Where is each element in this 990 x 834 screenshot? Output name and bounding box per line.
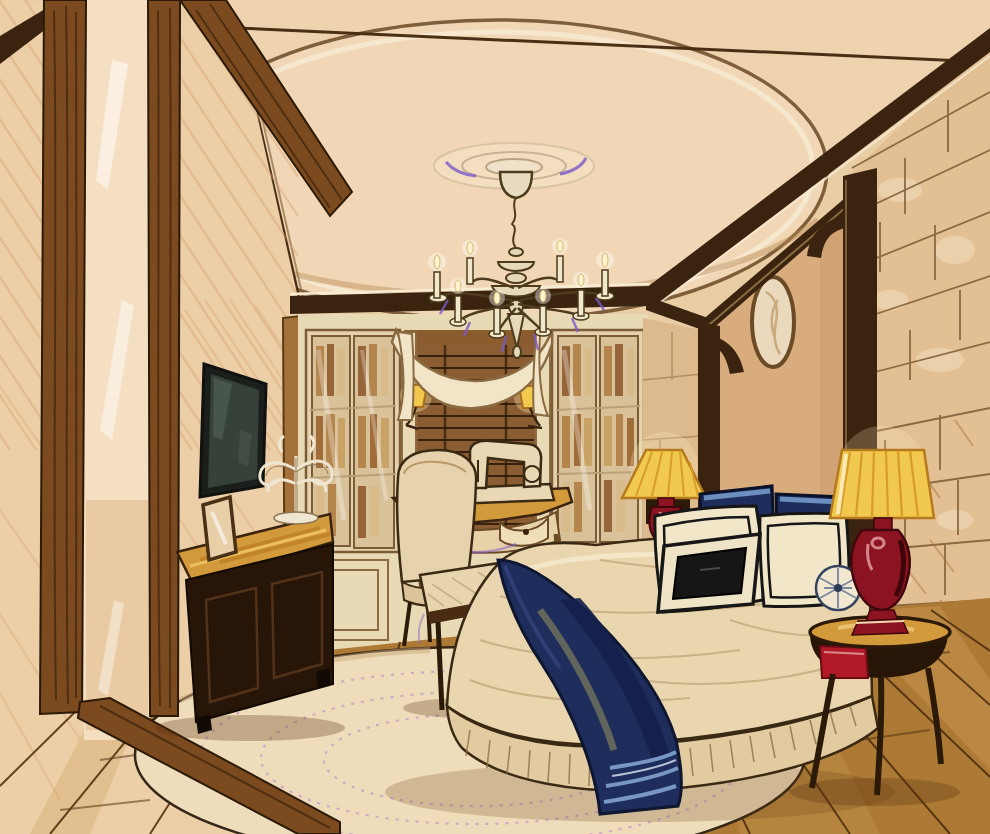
black-lumbar-pillow bbox=[658, 534, 760, 612]
wall-medallion bbox=[752, 277, 794, 367]
illustration-canvas bbox=[0, 0, 990, 834]
dresser-shadow bbox=[155, 715, 345, 741]
window-stile-outer bbox=[40, 0, 86, 714]
window-stile-inner bbox=[148, 0, 180, 716]
bookcase-right bbox=[552, 330, 644, 548]
drawer-pull bbox=[523, 529, 529, 535]
table-red-drawer bbox=[820, 646, 868, 678]
watercolor-bedroom-rendering bbox=[0, 0, 990, 834]
photo-frame bbox=[203, 497, 236, 560]
flat-screen-tv bbox=[200, 364, 266, 497]
sham-band bbox=[780, 499, 840, 502]
